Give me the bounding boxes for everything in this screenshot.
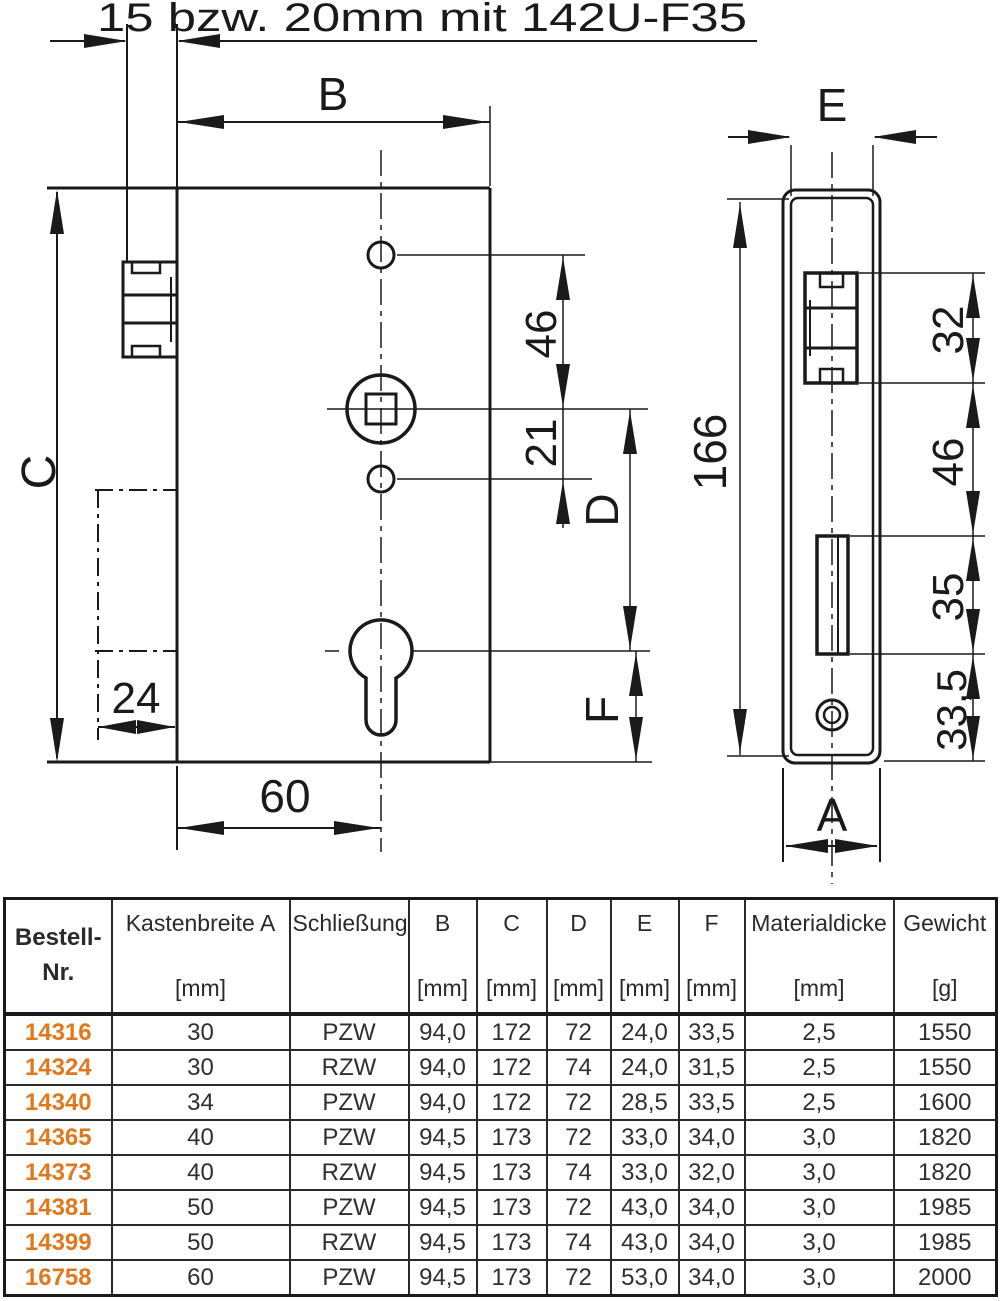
cell-f: 34,0 xyxy=(679,1190,745,1225)
cell-f: 34,0 xyxy=(679,1225,745,1260)
cell-schliessung: RZW xyxy=(290,1225,409,1260)
cell-e: 53,0 xyxy=(611,1260,679,1296)
drawing-title: 15 bzw. 20mm mit 142U-F35 xyxy=(97,0,747,40)
col-header-gewicht: Gewicht[g] xyxy=(894,899,997,1015)
dim-label-24: 24 xyxy=(112,674,161,723)
dim-label-35: 35 xyxy=(924,573,973,622)
cell-e: 28,5 xyxy=(611,1085,679,1120)
dim-label-e: E xyxy=(817,79,848,131)
header-unit: [g] xyxy=(897,977,994,1000)
cell-b: 94,5 xyxy=(409,1225,477,1260)
cell-f: 33,5 xyxy=(679,1014,745,1050)
header-label: Nr. xyxy=(6,956,111,991)
cell-gewicht: 1985 xyxy=(894,1190,997,1225)
cell-kastenbreite: 30 xyxy=(112,1050,290,1085)
cell-d: 72 xyxy=(547,1085,611,1120)
header-label: Kastenbreite A xyxy=(115,910,287,936)
table-row: 14399 50 RZW 94,5 173 74 43,0 34,0 3,0 1… xyxy=(5,1225,997,1260)
cell-e: 24,0 xyxy=(611,1014,679,1050)
cell-bestell-nr: 14316 xyxy=(5,1014,112,1050)
header-unit: [mm] xyxy=(550,977,608,1000)
cell-gewicht: 1550 xyxy=(894,1050,997,1085)
cell-gewicht: 1550 xyxy=(894,1014,997,1050)
header-unit: [mm] xyxy=(115,977,287,1000)
dim-label-46-side: 46 xyxy=(924,438,973,487)
table-row: 14316 30 PZW 94,0 172 72 24,0 33,5 2,5 1… xyxy=(5,1014,997,1050)
col-header-bestell-nr: Bestell-Nr. xyxy=(5,899,112,1015)
header-unit: [mm] xyxy=(614,977,676,1000)
dim-label-60: 60 xyxy=(259,770,310,822)
cell-kastenbreite: 34 xyxy=(112,1085,290,1120)
dim-label-d: D xyxy=(576,493,628,526)
cell-bestell-nr: 14399 xyxy=(5,1225,112,1260)
side-view xyxy=(727,130,985,884)
cell-materialdicke: 2,5 xyxy=(745,1050,894,1085)
header-label: E xyxy=(614,910,676,936)
cell-materialdicke: 3,0 xyxy=(745,1260,894,1296)
header-label: Bestell- xyxy=(6,921,111,956)
header-label: F xyxy=(682,910,742,936)
cell-e: 33,0 xyxy=(611,1120,679,1155)
cell-gewicht: 1820 xyxy=(894,1155,997,1190)
cell-c: 173 xyxy=(477,1225,547,1260)
header-label: Schließung xyxy=(293,910,406,936)
cell-schliessung: PZW xyxy=(290,1085,409,1120)
title-dimension xyxy=(50,24,757,262)
cell-bestell-nr: 14340 xyxy=(5,1085,112,1120)
spec-table: Bestell-Nr. Kastenbreite A[mm] Schließun… xyxy=(3,897,998,1297)
table-row: 14324 30 RZW 94,0 172 74 24,0 31,5 2,5 1… xyxy=(5,1050,997,1085)
cell-gewicht: 2000 xyxy=(894,1260,997,1296)
cell-e: 43,0 xyxy=(611,1225,679,1260)
cell-kastenbreite: 50 xyxy=(112,1190,290,1225)
cell-materialdicke: 3,0 xyxy=(745,1225,894,1260)
cell-schliessung: PZW xyxy=(290,1120,409,1155)
technical-drawing: 15 bzw. 20mm mit 142U-F35 xyxy=(0,0,1000,897)
table-row: 16758 60 PZW 94,5 173 72 53,0 34,0 3,0 2… xyxy=(5,1260,997,1296)
cell-d: 74 xyxy=(547,1155,611,1190)
table-row: 14365 40 PZW 94,5 173 72 33,0 34,0 3,0 1… xyxy=(5,1120,997,1155)
cell-b: 94,5 xyxy=(409,1155,477,1190)
cell-kastenbreite: 40 xyxy=(112,1120,290,1155)
cell-gewicht: 1600 xyxy=(894,1085,997,1120)
col-header-schliessung: Schließung xyxy=(290,899,409,1015)
cell-gewicht: 1985 xyxy=(894,1225,997,1260)
dim-label-166: 166 xyxy=(684,414,736,491)
header-unit: [mm] xyxy=(682,977,742,1000)
cell-c: 172 xyxy=(477,1085,547,1120)
cell-materialdicke: 2,5 xyxy=(745,1014,894,1050)
cell-b: 94,0 xyxy=(409,1050,477,1085)
cell-schliessung: RZW xyxy=(290,1155,409,1190)
cell-schliessung: PZW xyxy=(290,1260,409,1296)
cell-bestell-nr: 14381 xyxy=(5,1190,112,1225)
col-header-materialdicke: Materialdicke[mm] xyxy=(745,899,894,1015)
cell-d: 72 xyxy=(547,1120,611,1155)
front-view xyxy=(47,106,652,852)
cell-kastenbreite: 30 xyxy=(112,1014,290,1050)
header-unit: [mm] xyxy=(480,977,544,1000)
dim-label-33-5: 33,5 xyxy=(928,669,975,751)
dim-label-21: 21 xyxy=(517,419,566,468)
table-row: 14373 40 RZW 94,5 173 74 33,0 32,0 3,0 1… xyxy=(5,1155,997,1190)
header-unit: [mm] xyxy=(412,977,474,1000)
cell-b: 94,5 xyxy=(409,1120,477,1155)
col-header-f: F[mm] xyxy=(679,899,745,1015)
dim-label-32: 32 xyxy=(924,306,973,355)
cell-c: 173 xyxy=(477,1120,547,1155)
cell-materialdicke: 3,0 xyxy=(745,1155,894,1190)
col-header-c: C[mm] xyxy=(477,899,547,1015)
cell-d: 74 xyxy=(547,1225,611,1260)
table-row: 14381 50 PZW 94,5 173 72 43,0 34,0 3,0 1… xyxy=(5,1190,997,1225)
cell-f: 31,5 xyxy=(679,1050,745,1085)
cell-d: 72 xyxy=(547,1260,611,1296)
dim-label-c: C xyxy=(13,455,66,490)
cell-c: 173 xyxy=(477,1155,547,1190)
cell-schliessung: PZW xyxy=(290,1190,409,1225)
latch-opening xyxy=(805,273,857,383)
header-label: B xyxy=(412,910,474,936)
cell-kastenbreite: 50 xyxy=(112,1225,290,1260)
cell-b: 94,5 xyxy=(409,1190,477,1225)
cell-e: 33,0 xyxy=(611,1155,679,1190)
cell-b: 94,5 xyxy=(409,1260,477,1296)
cell-schliessung: PZW xyxy=(290,1014,409,1050)
cell-c: 172 xyxy=(477,1050,547,1085)
header-label: Gewicht xyxy=(897,910,994,936)
cell-f: 33,5 xyxy=(679,1085,745,1120)
col-header-d: D[mm] xyxy=(547,899,611,1015)
cell-materialdicke: 3,0 xyxy=(745,1190,894,1225)
col-header-b: B[mm] xyxy=(409,899,477,1015)
cell-e: 43,0 xyxy=(611,1190,679,1225)
latch-bolt-front xyxy=(123,262,177,357)
cell-f: 34,0 xyxy=(679,1260,745,1296)
cell-bestell-nr: 14365 xyxy=(5,1120,112,1155)
col-header-e: E[mm] xyxy=(611,899,679,1015)
cell-b: 94,0 xyxy=(409,1014,477,1050)
cell-bestell-nr: 14373 xyxy=(5,1155,112,1190)
header-label: C xyxy=(480,910,544,936)
cell-schliessung: RZW xyxy=(290,1050,409,1085)
header-row: Bestell-Nr. Kastenbreite A[mm] Schließun… xyxy=(5,899,997,1015)
cell-materialdicke: 2,5 xyxy=(745,1085,894,1120)
cell-c: 172 xyxy=(477,1014,547,1050)
cell-d: 72 xyxy=(547,1014,611,1050)
cell-kastenbreite: 40 xyxy=(112,1155,290,1190)
cell-gewicht: 1820 xyxy=(894,1120,997,1155)
cell-c: 173 xyxy=(477,1260,547,1296)
cell-bestell-nr: 16758 xyxy=(5,1260,112,1296)
dim-label-f: F xyxy=(576,696,628,724)
dim-label-46: 46 xyxy=(517,310,566,359)
table-row: 14340 34 PZW 94,0 172 72 28,5 33,5 2,5 1… xyxy=(5,1085,997,1120)
cell-bestell-nr: 14324 xyxy=(5,1050,112,1085)
dim-label-a: A xyxy=(817,789,848,841)
cell-e: 24,0 xyxy=(611,1050,679,1085)
cell-materialdicke: 3,0 xyxy=(745,1120,894,1155)
dim-label-b: B xyxy=(318,68,349,120)
catalog-page: 15 bzw. 20mm mit 142U-F35 xyxy=(0,0,1000,1301)
cell-d: 74 xyxy=(547,1050,611,1085)
col-header-kastenbreite: Kastenbreite A[mm] xyxy=(112,899,290,1015)
header-label: D xyxy=(550,910,608,936)
cell-d: 72 xyxy=(547,1190,611,1225)
cell-f: 34,0 xyxy=(679,1120,745,1155)
cell-kastenbreite: 60 xyxy=(112,1260,290,1296)
header-label: Materialdicke xyxy=(748,910,891,936)
cell-f: 32,0 xyxy=(679,1155,745,1190)
cell-b: 94,0 xyxy=(409,1085,477,1120)
header-unit: [mm] xyxy=(748,977,891,1000)
cell-c: 173 xyxy=(477,1190,547,1225)
